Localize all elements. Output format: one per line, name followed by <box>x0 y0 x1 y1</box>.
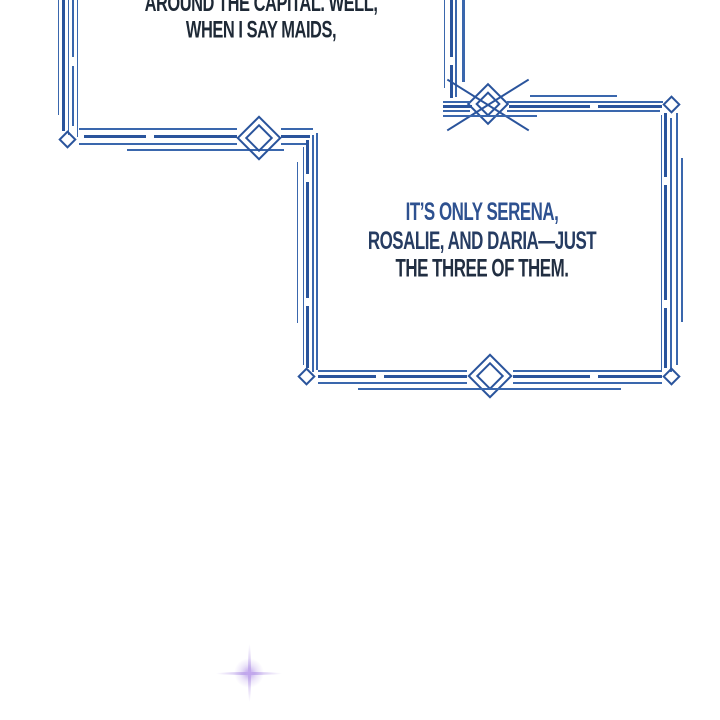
speech-text-1: AROUND THE CAPITAL. WELL, WHEN I SAY MAI… <box>111 0 412 43</box>
border-line <box>598 375 662 378</box>
speech-line: ROSALIE, AND DARIA—JUST <box>341 226 623 254</box>
comic-page: AROUND THE CAPITAL. WELL, WHEN I SAY MAI… <box>0 0 720 720</box>
border-line <box>513 375 590 378</box>
speech-line: THE THREE OF THEM. <box>341 255 623 283</box>
border-line <box>507 101 663 103</box>
border-line <box>598 105 662 108</box>
border-line <box>312 135 314 372</box>
border-line <box>462 0 465 82</box>
border-line <box>316 133 318 370</box>
border-line <box>664 185 667 300</box>
border-line <box>72 66 74 126</box>
border-line <box>676 113 678 365</box>
border-line <box>68 0 70 135</box>
border-line <box>530 95 617 97</box>
border-line <box>303 147 305 365</box>
border-line <box>450 0 453 57</box>
border-line <box>306 306 309 368</box>
border-line <box>154 135 237 138</box>
border-line <box>443 101 470 103</box>
border-line <box>62 0 65 131</box>
border-line <box>281 135 310 138</box>
border-line <box>306 182 309 298</box>
border-line <box>664 308 667 368</box>
corner-diamond-icon <box>662 367 680 385</box>
border-line <box>681 158 683 322</box>
border-line <box>509 105 590 108</box>
speech-line: AROUND THE CAPITAL. WELL, <box>111 0 412 17</box>
border-line <box>297 162 299 323</box>
border-line <box>513 382 662 384</box>
border-line <box>318 375 376 378</box>
speech-text-2: IT’S ONLY SERENA, ROSALIE, AND DARIA—JUS… <box>341 198 623 283</box>
border-line <box>507 110 660 112</box>
sparkle-core <box>245 669 253 677</box>
border-line <box>318 370 467 372</box>
border-line <box>443 110 470 112</box>
border-line <box>306 140 309 174</box>
border-line <box>281 128 313 130</box>
border-line <box>318 382 467 384</box>
border-line <box>77 0 79 137</box>
speech-line: WHEN I SAY MAIDS, <box>111 17 412 44</box>
border-line <box>670 118 672 372</box>
corner-diamond-icon <box>58 130 76 148</box>
border-line <box>84 135 146 138</box>
border-line <box>513 370 662 372</box>
border-line <box>79 143 237 146</box>
border-line <box>358 388 621 390</box>
border-line <box>444 0 446 88</box>
border-line <box>664 113 667 177</box>
border-line <box>281 143 307 146</box>
border-line <box>661 115 663 370</box>
speech-line: IT’S ONLY SERENA, <box>341 198 623 226</box>
border-line <box>79 128 237 130</box>
border-line <box>384 375 467 378</box>
corner-diamond-icon <box>662 95 680 113</box>
border-line <box>443 105 472 108</box>
border-line <box>72 0 74 57</box>
border-line <box>443 115 537 117</box>
border-line <box>58 0 60 115</box>
